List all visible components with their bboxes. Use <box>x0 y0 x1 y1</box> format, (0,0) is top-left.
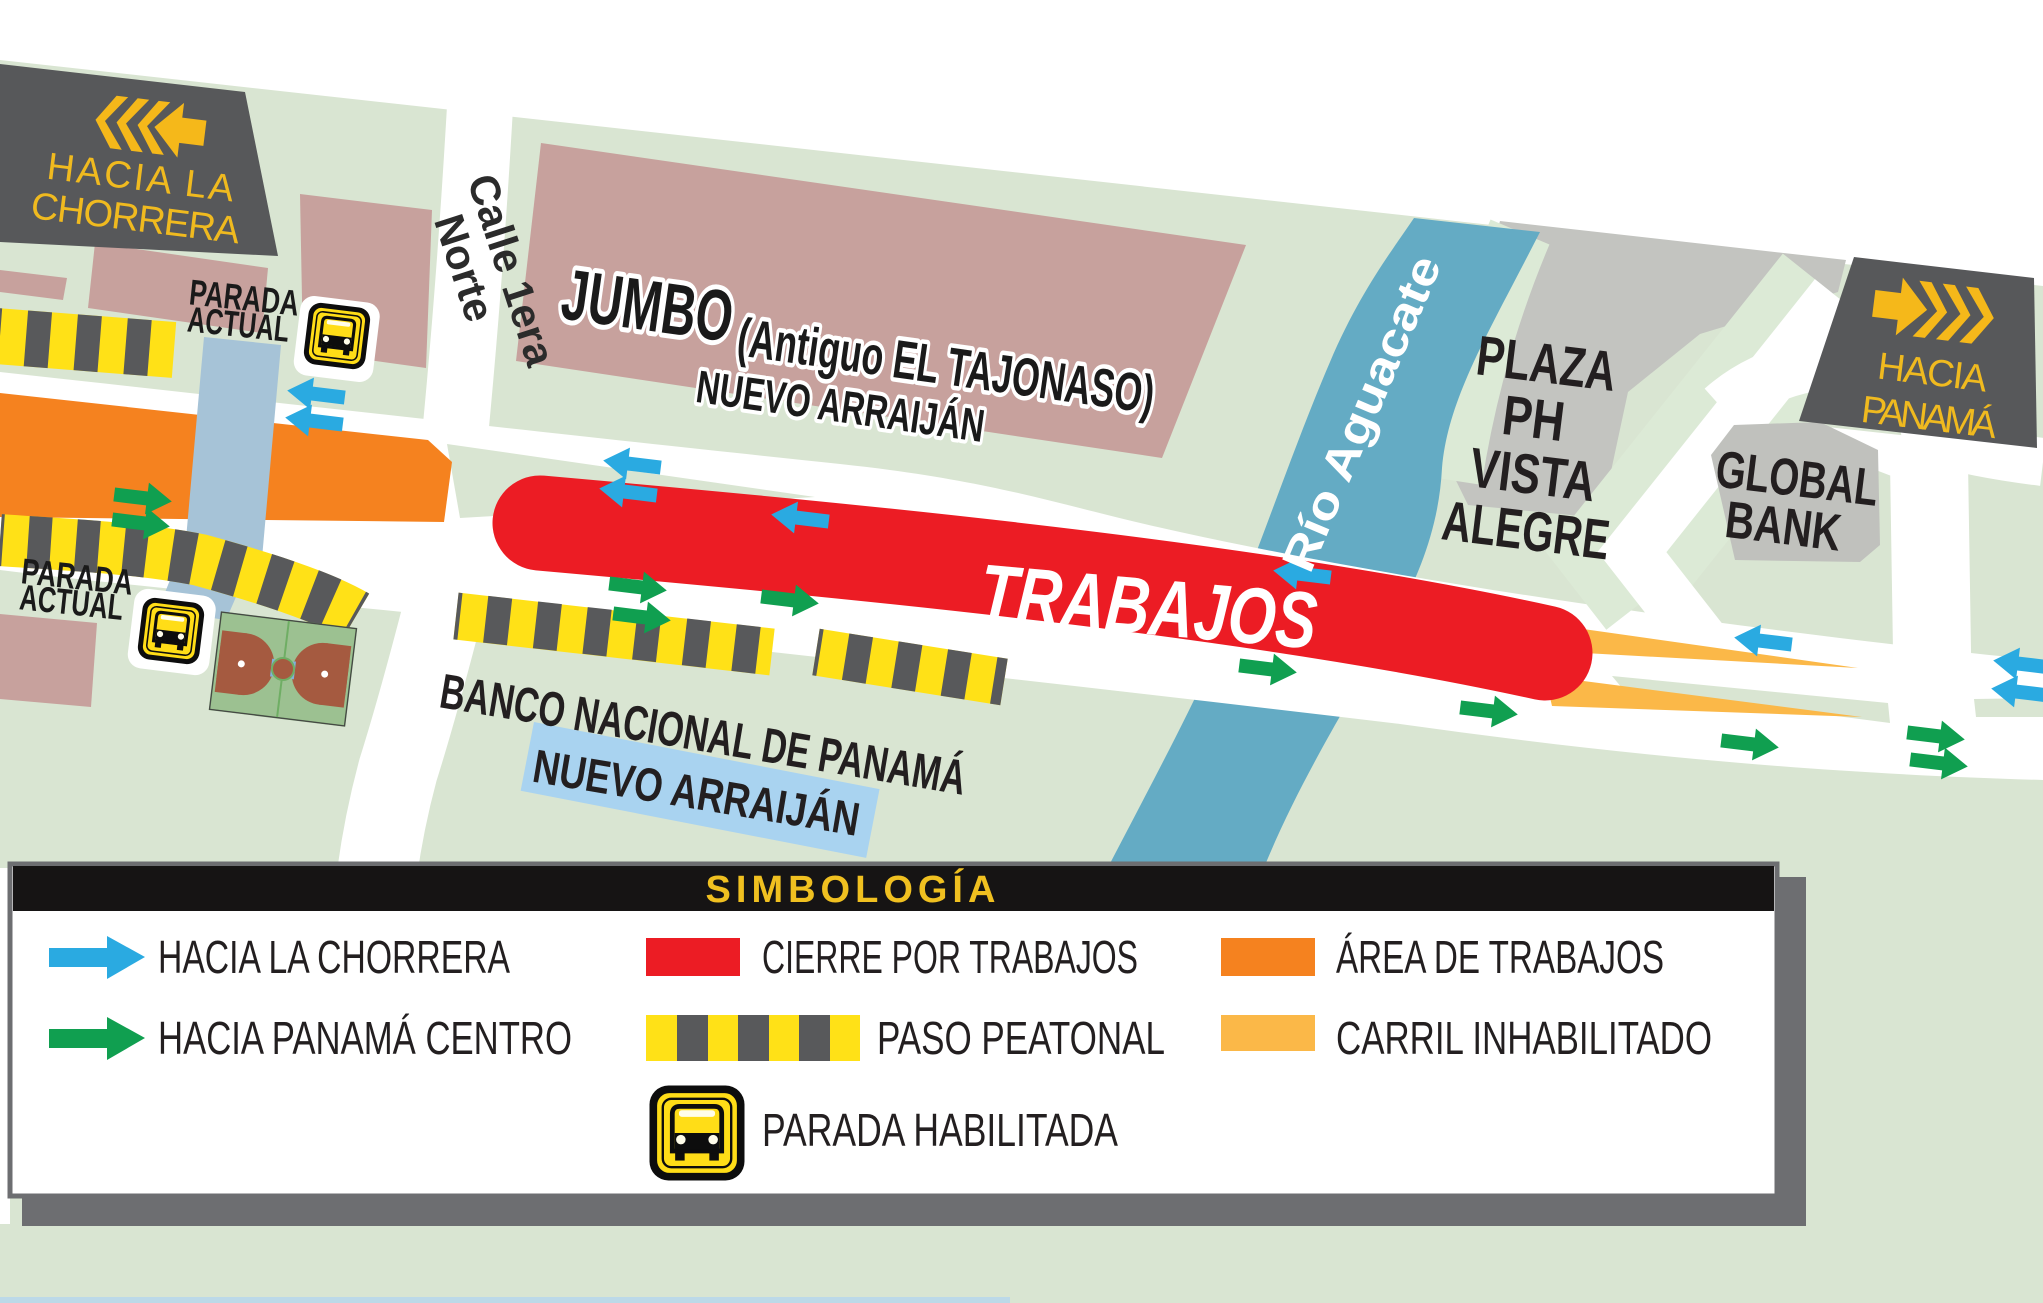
svg-text:HACIA PANAMÁ CENTRO: HACIA PANAMÁ CENTRO <box>158 1012 572 1064</box>
svg-text:SIMBOLOGÍA: SIMBOLOGÍA <box>706 867 1001 911</box>
svg-text:CIERRE POR TRABAJOS: CIERRE POR TRABAJOS <box>762 931 1138 983</box>
svg-text:PASO PEATONAL: PASO PEATONAL <box>877 1012 1165 1064</box>
svg-text:HACIA LA CHORRERA: HACIA LA CHORRERA <box>158 931 510 983</box>
svg-text:PARADA HABILITADA: PARADA HABILITADA <box>762 1104 1118 1156</box>
svg-text:ÁREA DE TRABAJOS: ÁREA DE TRABAJOS <box>1336 931 1664 983</box>
svg-text:CARRIL INHABILITADO: CARRIL INHABILITADO <box>1336 1012 1712 1064</box>
